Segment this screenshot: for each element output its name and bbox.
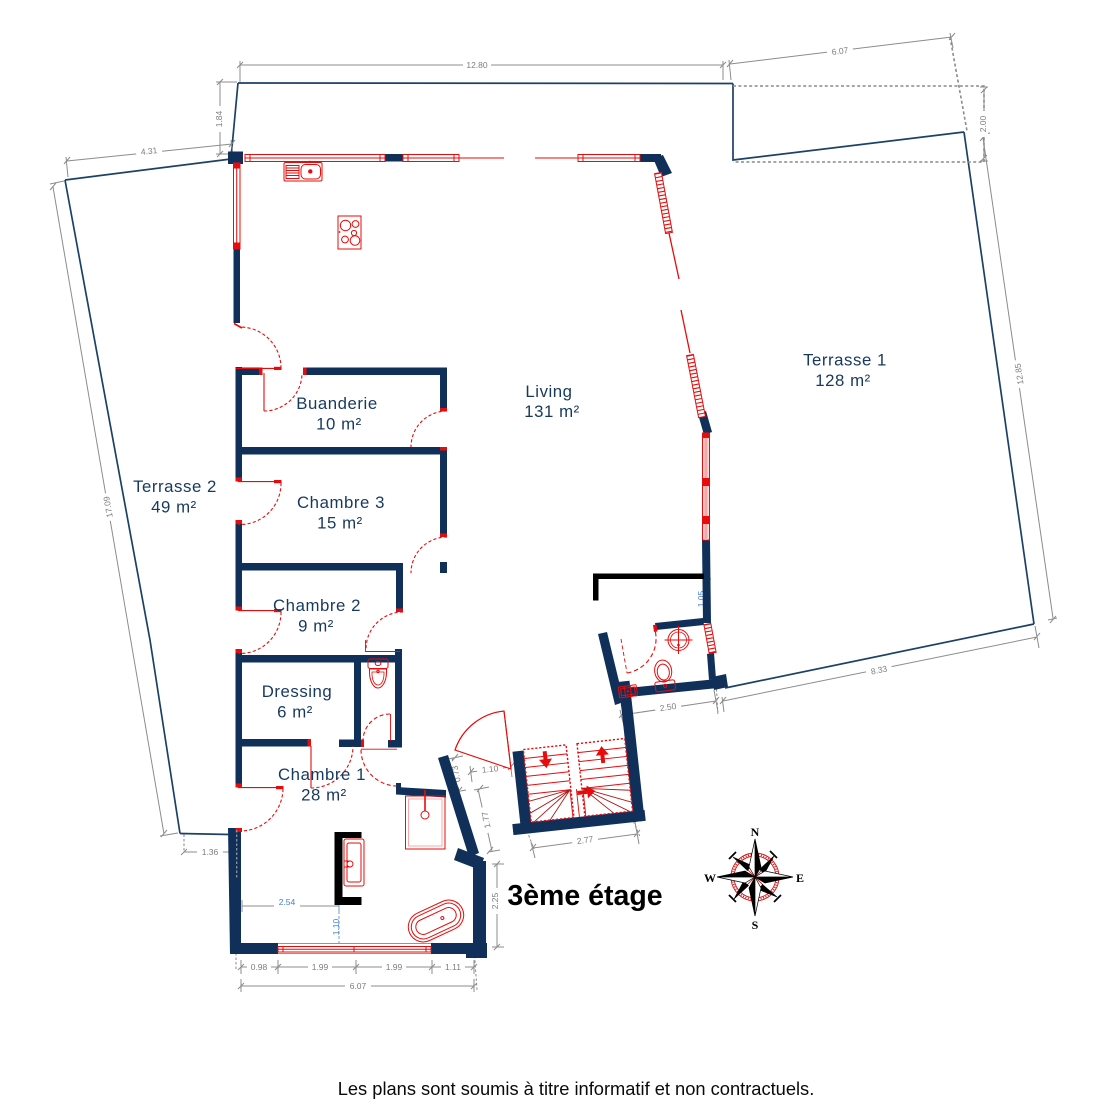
- svg-text:1.10: 1.10: [481, 763, 499, 775]
- svg-text:1.11: 1.11: [445, 962, 461, 972]
- svg-text:6 m²: 6 m²: [277, 703, 313, 722]
- svg-text:Chambre 2: Chambre 2: [273, 596, 361, 615]
- svg-text:S: S: [752, 918, 759, 932]
- svg-text:Dressing: Dressing: [262, 682, 333, 701]
- svg-text:Buanderie: Buanderie: [296, 394, 377, 413]
- svg-text:1.84: 1.84: [214, 110, 224, 127]
- svg-text:E: E: [796, 871, 804, 885]
- svg-text:12.80: 12.80: [466, 60, 488, 70]
- svg-text:15 m²: 15 m²: [317, 514, 363, 533]
- svg-text:1.99: 1.99: [312, 962, 329, 972]
- svg-text:2.00: 2.00: [978, 115, 988, 132]
- svg-text:Les plans sont soumis à titre: Les plans sont soumis à titre informatif…: [338, 1078, 815, 1099]
- svg-text:28 m²: 28 m²: [301, 786, 347, 805]
- svg-text:Chambre 3: Chambre 3: [297, 493, 385, 512]
- svg-text:49 m²: 49 m²: [151, 498, 197, 517]
- svg-text:6.07: 6.07: [350, 981, 367, 991]
- svg-text:128 m²: 128 m²: [815, 371, 871, 390]
- svg-text:2.54: 2.54: [279, 897, 296, 907]
- svg-text:9 m²: 9 m²: [298, 617, 334, 636]
- svg-text:3ème étage: 3ème étage: [507, 880, 662, 912]
- svg-text:Living: Living: [525, 382, 572, 401]
- svg-text:1.99: 1.99: [386, 962, 403, 972]
- svg-text:Chambre 1: Chambre 1: [278, 765, 366, 784]
- svg-text:4.31: 4.31: [140, 145, 158, 157]
- svg-text:Terrasse 1: Terrasse 1: [803, 351, 887, 370]
- svg-text:0.98: 0.98: [251, 962, 268, 972]
- svg-text:2.25: 2.25: [490, 892, 500, 909]
- svg-text:1.36: 1.36: [202, 847, 219, 857]
- svg-text:10 m²: 10 m²: [316, 415, 362, 434]
- svg-text:131 m²: 131 m²: [524, 402, 580, 421]
- svg-text:Terrasse 2: Terrasse 2: [133, 477, 217, 496]
- svg-text:6.07: 6.07: [831, 45, 849, 57]
- svg-text:W: W: [704, 871, 716, 885]
- svg-text:1.10: 1.10: [331, 918, 341, 935]
- svg-text:N: N: [751, 825, 760, 839]
